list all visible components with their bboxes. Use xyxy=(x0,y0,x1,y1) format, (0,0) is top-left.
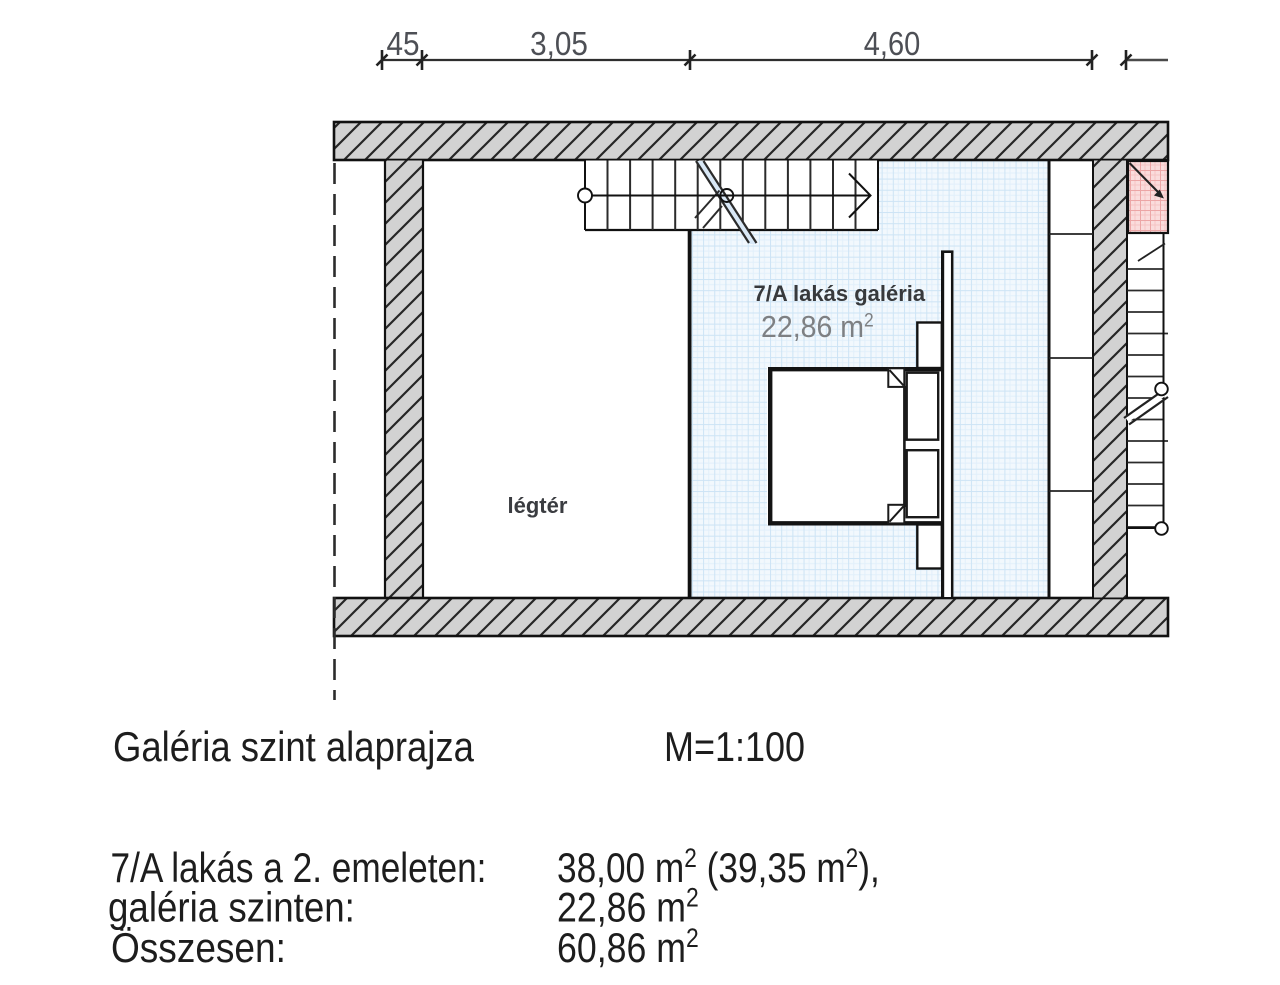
svg-text:3,05: 3,05 xyxy=(530,26,588,63)
svg-text:M=1:100: M=1:100 xyxy=(664,724,805,770)
svg-text:4,60: 4,60 xyxy=(864,25,921,62)
svg-text:légtér: légtér xyxy=(508,493,568,518)
svg-text:Összesen:: Összesen: xyxy=(111,925,286,972)
svg-text:22,86 m2: 22,86 m2 xyxy=(557,883,699,931)
svg-text:60,86 m2: 60,86 m2 xyxy=(557,923,699,971)
svg-text:7/A lakás galéria: 7/A lakás galéria xyxy=(754,281,926,306)
svg-text:Galéria szint alaprajza: Galéria szint alaprajza xyxy=(113,724,474,771)
svg-text:45: 45 xyxy=(386,26,419,63)
svg-text:22,86 m2: 22,86 m2 xyxy=(761,309,874,344)
